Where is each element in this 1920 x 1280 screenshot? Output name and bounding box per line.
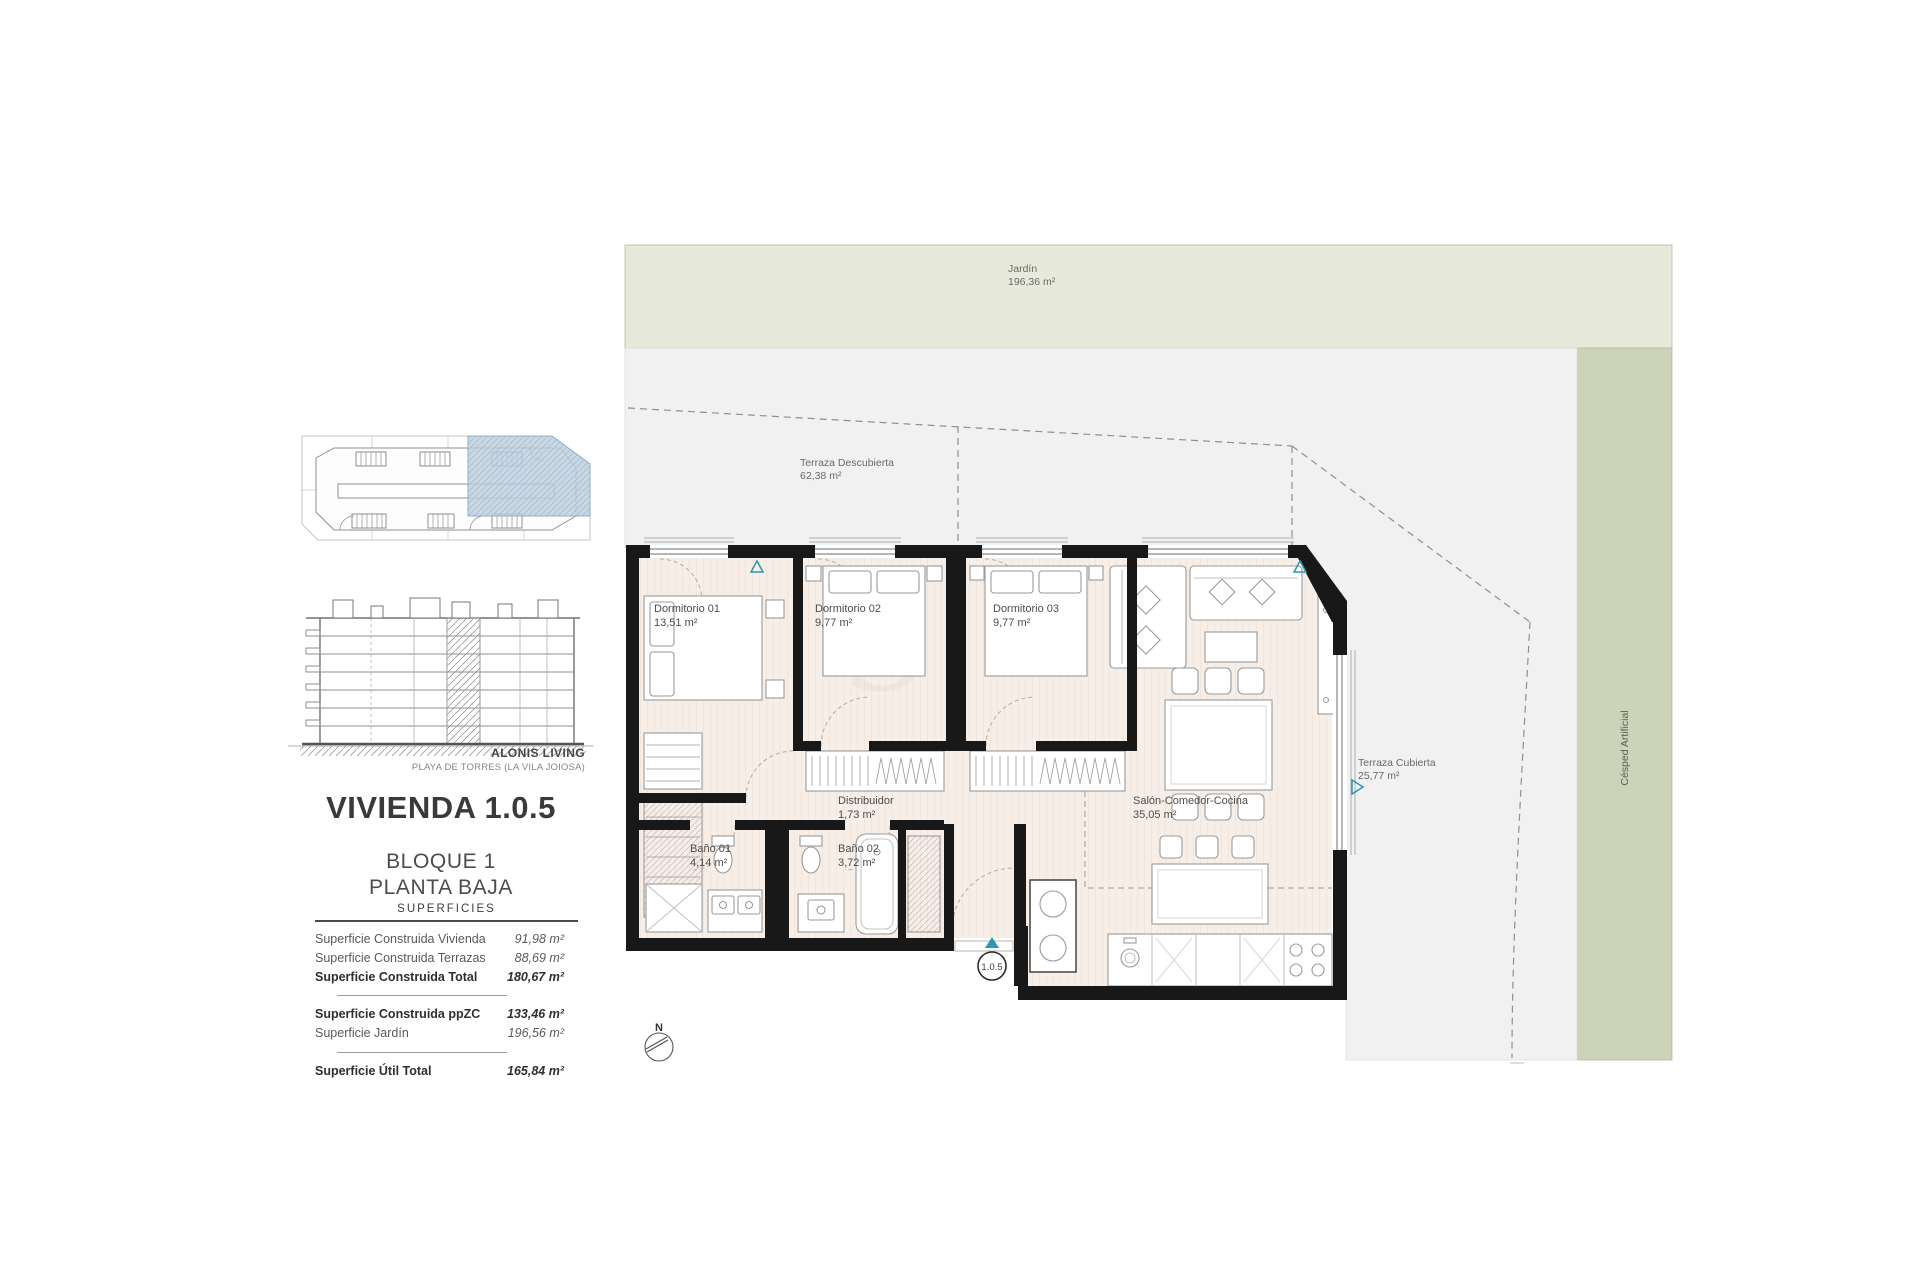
elevation-drawing	[288, 598, 594, 756]
floor-label: PLANTA BAJA	[295, 875, 587, 901]
washer-dryer-unit	[1030, 880, 1076, 972]
brand-location: PLAYA DE TORRES (LA VILA JOIOSA)	[295, 762, 585, 773]
entrance-step	[955, 941, 1013, 951]
room-label: Baño 02	[838, 843, 879, 855]
artificial-grass-strip	[1577, 348, 1672, 1060]
room-label: Dormitorio 01	[654, 603, 720, 615]
coffee-table	[1205, 632, 1257, 662]
room-label: Dormitorio 02	[815, 603, 881, 615]
room-label: Baño 01	[690, 843, 731, 855]
unit-title: VIVIENDA 1.0.5	[295, 790, 587, 826]
table-row: Superficie Construida Vivienda 91,98 m²	[315, 930, 578, 949]
room-label: Salón-Comedor-Cocina	[1133, 795, 1249, 807]
room-label: Dormitorio 03	[993, 603, 1059, 615]
divider	[337, 1052, 507, 1053]
surfaces-title: SUPERFICIES	[315, 903, 578, 922]
room-area: 13,51 m²	[654, 617, 698, 629]
north-label: N	[655, 1022, 663, 1034]
room-area: 4,14 m²	[690, 857, 728, 869]
kitchen-island	[1152, 836, 1268, 924]
unit-badge-label: 1.0.5	[981, 962, 1002, 973]
bed-double	[970, 566, 1103, 676]
room-area: 35,05 m²	[1133, 809, 1177, 821]
room-area: 9,77 m²	[815, 617, 853, 629]
outdoor-label: Césped Artificial	[1619, 710, 1631, 785]
room-area: 9,77 m²	[993, 617, 1031, 629]
room-area: 3,72 m²	[838, 857, 876, 869]
laundry-closet	[908, 836, 940, 932]
table-row: Superficie Construida Terrazas 88,69 m²	[315, 949, 578, 968]
wardrobe	[806, 751, 944, 791]
brand-name: ALONIS LIVING	[295, 746, 585, 760]
outdoor-label: Terraza Cubierta	[1358, 757, 1436, 769]
kitchen-counter	[1108, 934, 1332, 986]
outdoor-label: Terraza Descubierta	[800, 457, 894, 469]
key-plan-unit-highlight	[468, 436, 590, 516]
building-section-elevation	[288, 594, 594, 766]
outdoor-area: 62,38 m²	[800, 470, 842, 482]
divider	[337, 995, 507, 996]
garden-area	[625, 245, 1672, 348]
brand-block: ALONIS LIVING PLAYA DE TORRES (LA VILA J…	[295, 746, 585, 773]
unit-badge: 1.0.5	[978, 952, 1006, 980]
table-row: Superficie Construida ppZC 133,46 m²	[315, 1005, 578, 1024]
block-floor: BLOQUE 1 PLANTA BAJA	[295, 849, 587, 900]
north-compass: N	[645, 1022, 673, 1061]
outdoor-area: 196,36 m²	[1008, 276, 1056, 288]
plan-sheet: ALONIS LIVING PLAYA DE TORRES (LA VILA J…	[0, 0, 1920, 1280]
room-label: Distribuidor	[838, 795, 894, 807]
floor-plan: S	[620, 240, 1680, 1080]
sofa	[1190, 566, 1302, 620]
location-key-plan	[295, 425, 595, 593]
room-area: 1,73 m²	[838, 809, 876, 821]
outdoor-label: Jardín	[1008, 263, 1037, 275]
wardrobe	[970, 751, 1125, 791]
sofa	[1110, 566, 1186, 668]
table-row: Superficie Construida Total 180,67 m²	[315, 968, 578, 987]
table-row: Superficie Jardín 196,56 m²	[315, 1024, 578, 1043]
table-row: Superficie Útil Total 165,84 m²	[315, 1062, 578, 1081]
surfaces-table: SUPERFICIES Superficie Construida Vivien…	[315, 903, 578, 1081]
outdoor-area: 25,77 m²	[1358, 770, 1400, 782]
block-label: BLOQUE 1	[295, 849, 587, 875]
